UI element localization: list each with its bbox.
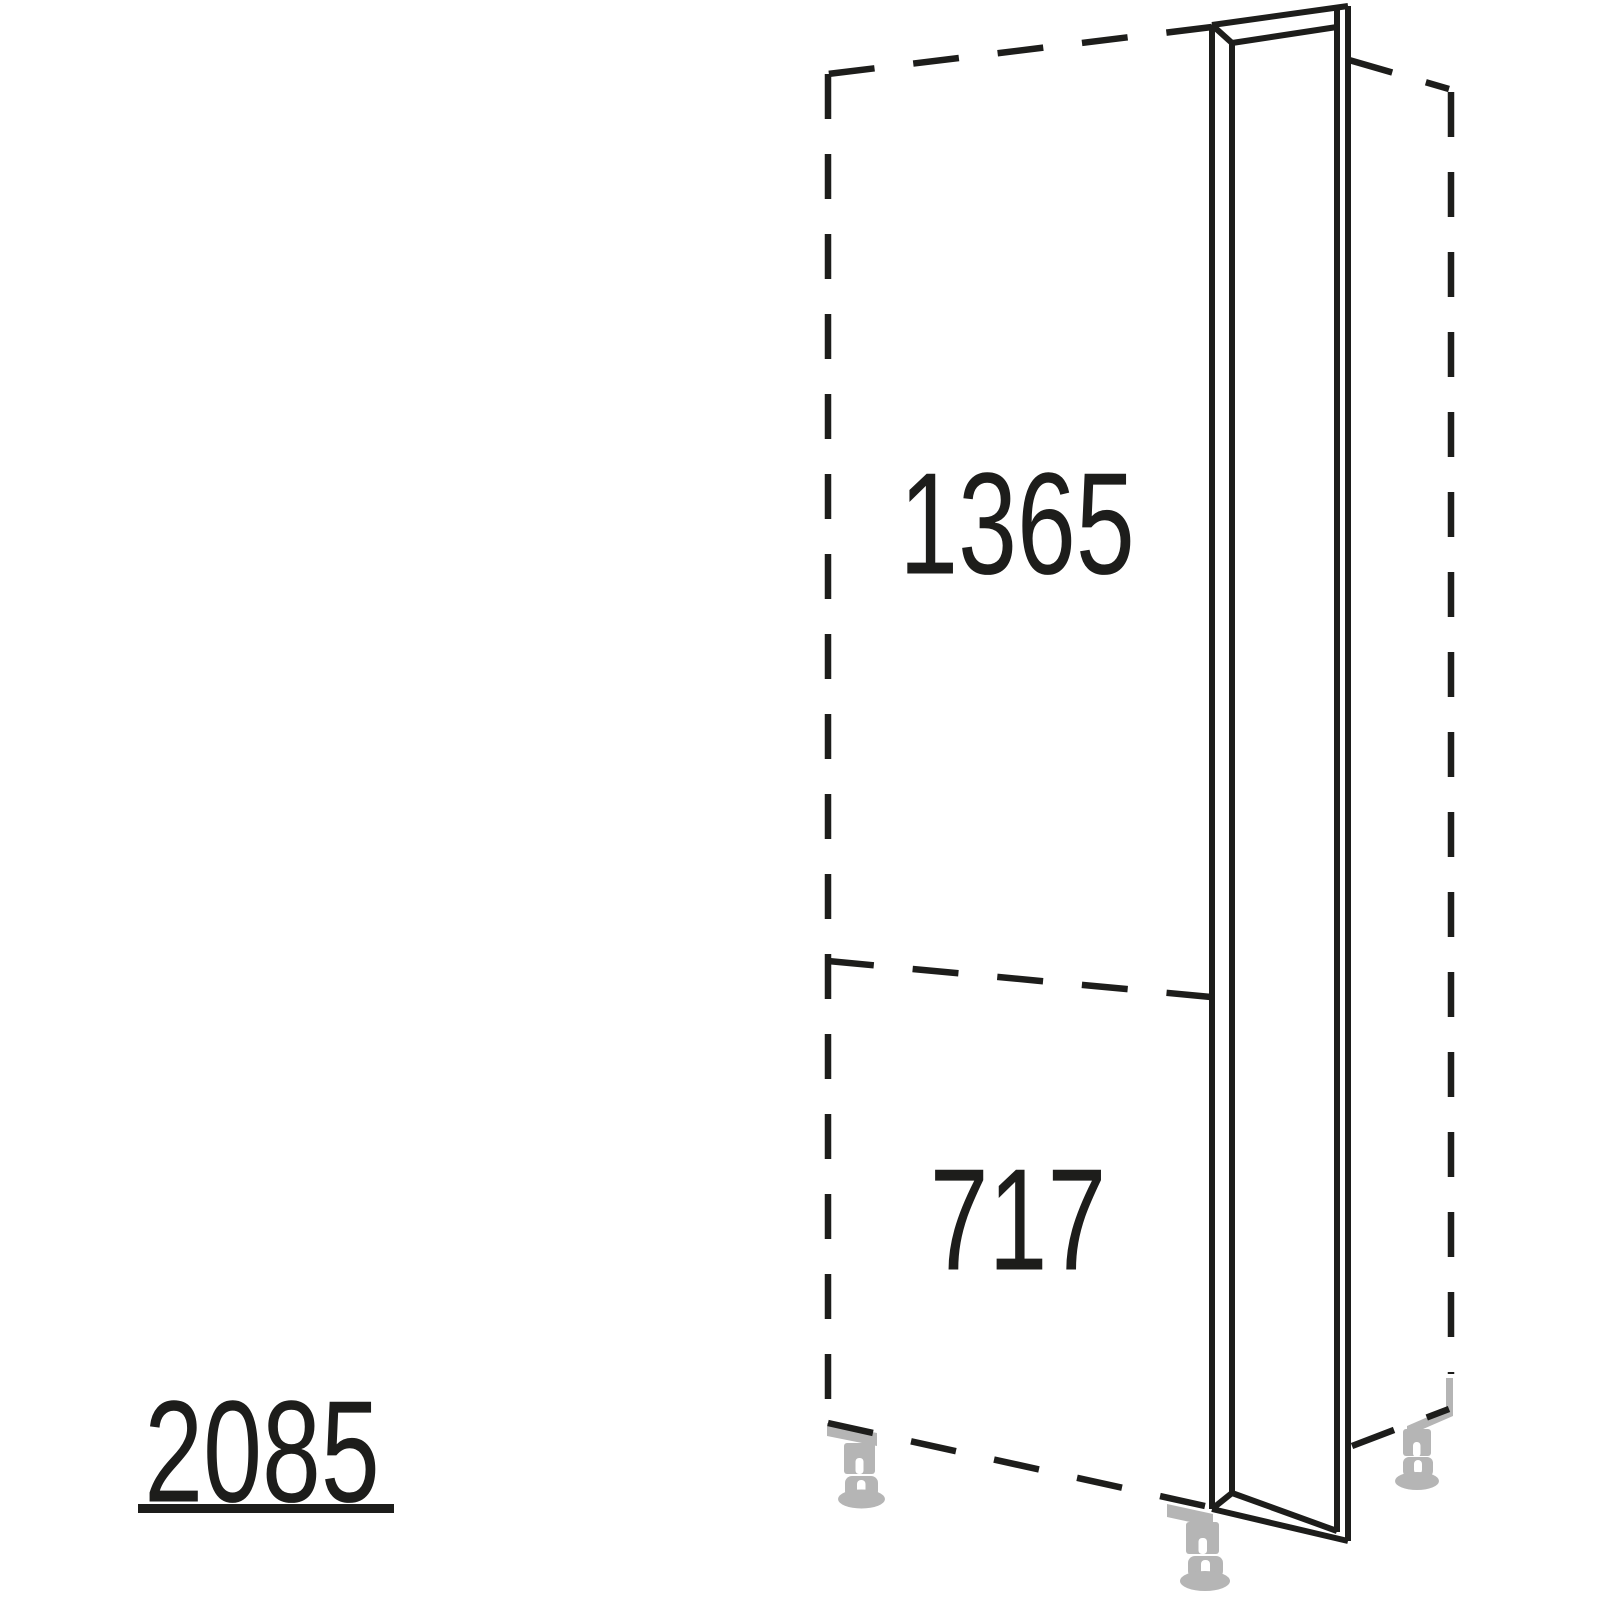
foot-barrel-slot [1414,1460,1422,1474]
adjacent-cabinet-dashed-outline [1349,60,1451,1446]
total-height-label: 2085 [144,1380,379,1525]
foot-stem-notch [1199,1538,1208,1554]
foot-stem-notch [1413,1442,1421,1457]
cabinet-top-edge [1349,60,1449,89]
cabinet-top-edge [828,27,1212,74]
technical-drawing-canvas: 1365 717 2085 [0,0,1600,1600]
lower-section-height-label: 717 [930,1148,1107,1293]
end-panel [1212,6,1348,1541]
foot-base [1180,1571,1230,1591]
panel-top-outer-edge [1212,6,1348,25]
foot-base [838,1490,885,1509]
foot-stem-notch [856,1458,864,1474]
divider-line [828,961,1211,997]
section-divider-dashed-line [828,961,1211,997]
adjustable-foot-middle [1167,1504,1230,1591]
cabinet-bottom-edge [828,1423,1205,1506]
cabinet-end-panel-diagram [0,0,1600,1600]
adjustable-foot-right [1395,1378,1453,1490]
total-height-underline [138,1504,394,1513]
adjustable-foot-left [827,1423,885,1509]
cabinet-bottom-edge [1352,1409,1449,1446]
upper-section-height-label: 1365 [899,452,1134,597]
panel-top-inner-edge [1232,27,1337,43]
foot-base [1395,1472,1439,1490]
